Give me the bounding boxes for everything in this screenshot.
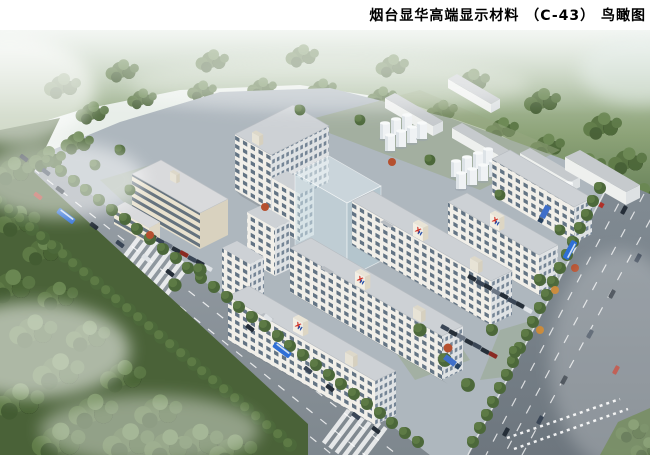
red-tree [388,158,396,166]
rendering-page: 烟台显华高端显示材料 （C-43） 鸟瞰图 [0,0,650,460]
red-tree [444,344,453,353]
red-tree [146,231,154,239]
red-tree [261,203,269,211]
aerial-rendering: XH XH XH [0,30,650,455]
red-tree [571,264,579,272]
orange-tree [536,326,544,334]
page-title: 烟台显华高端显示材料 （C-43） 鸟瞰图 [369,5,650,25]
title-bar: 烟台显华高端显示材料 （C-43） 鸟瞰图 [0,0,650,30]
orange-tree [551,286,559,294]
